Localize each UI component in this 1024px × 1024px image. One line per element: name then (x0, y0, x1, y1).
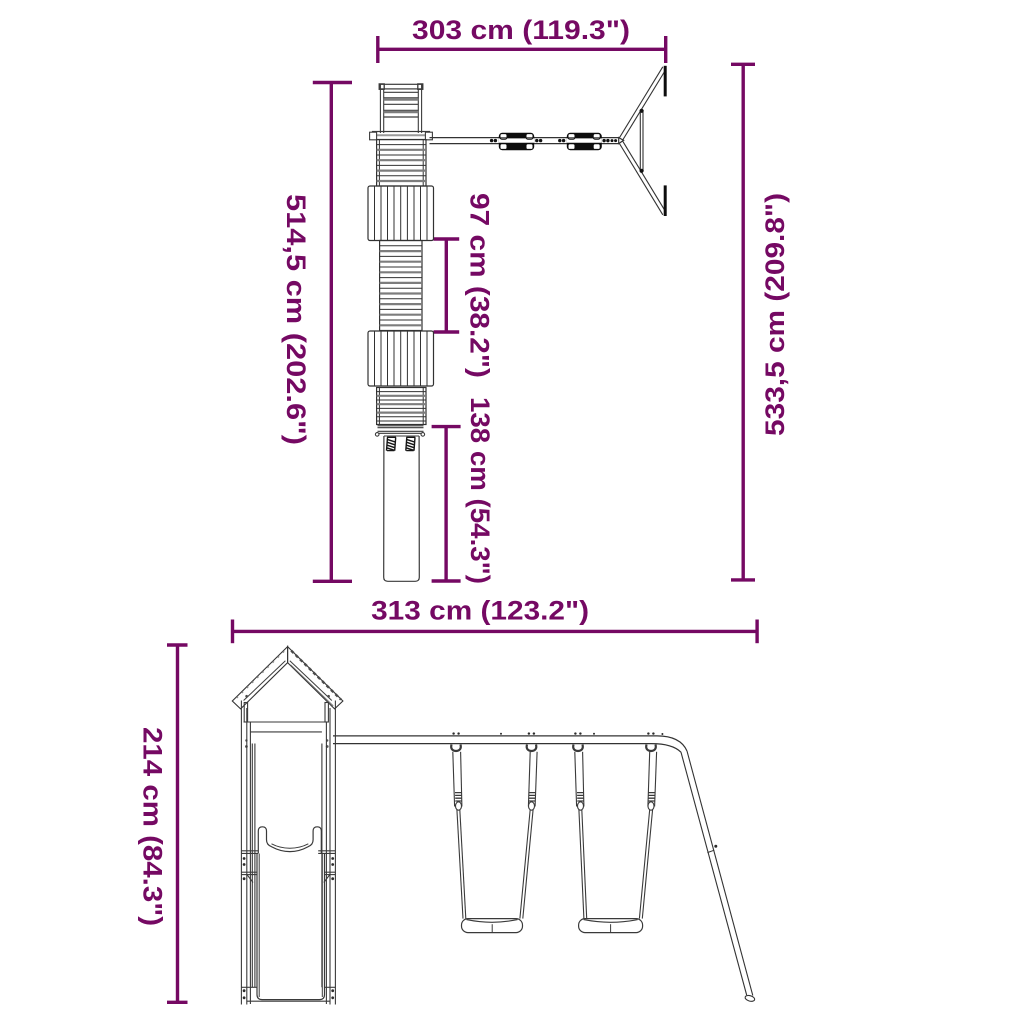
svg-text:97 cm (38.2"): 97 cm (38.2") (465, 193, 495, 378)
svg-text:214 cm (84.3"): 214 cm (84.3") (138, 727, 168, 926)
svg-text:514,5 cm (202.6"): 514,5 cm (202.6") (281, 194, 311, 445)
svg-text:303 cm (119.3"): 303 cm (119.3") (412, 15, 630, 45)
svg-text:138 cm (54.3"): 138 cm (54.3") (465, 397, 495, 584)
svg-text:533,5 cm (209.8"): 533,5 cm (209.8") (760, 193, 790, 436)
svg-text:313 cm (123.2"): 313 cm (123.2") (371, 596, 589, 626)
